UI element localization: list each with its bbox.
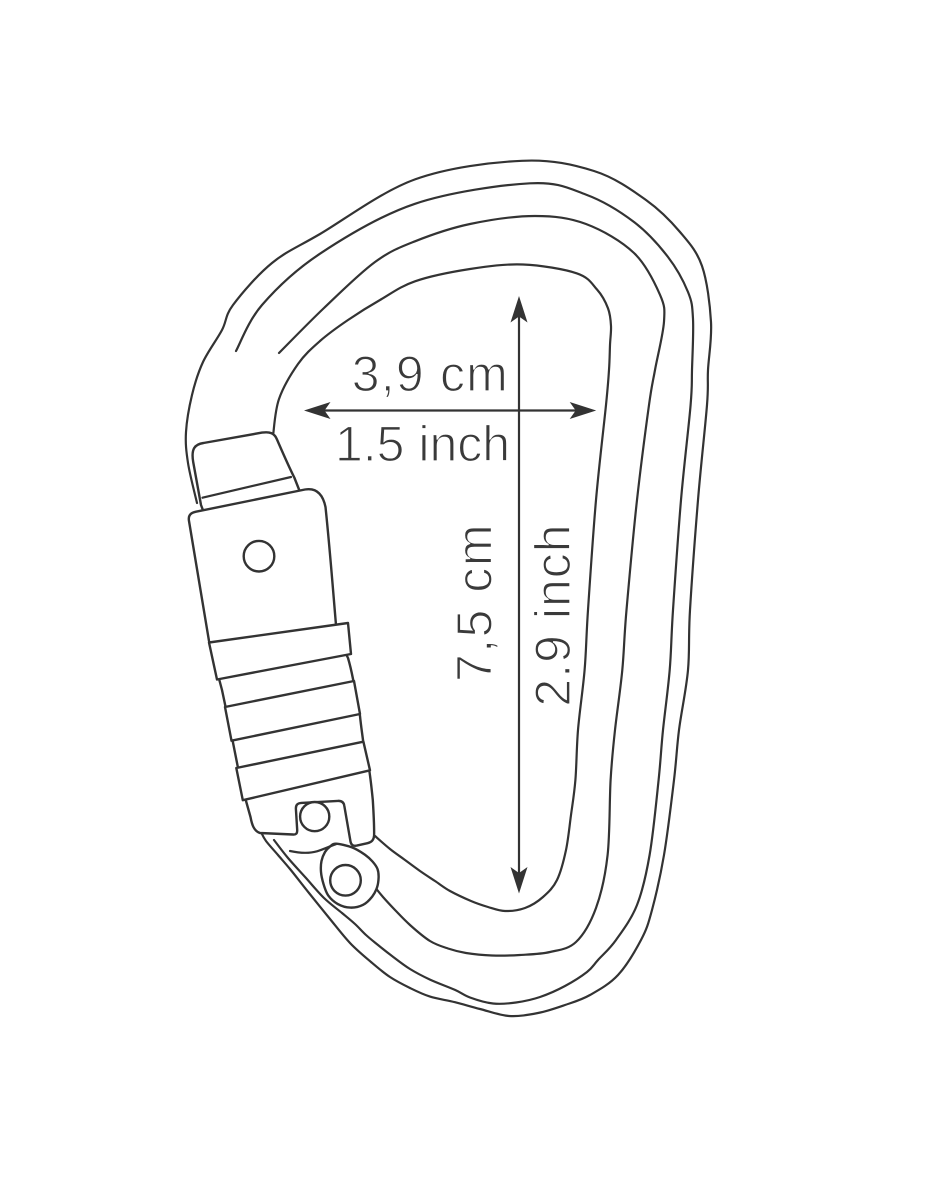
svg-text:3,9 cm: 3,9 cm bbox=[352, 346, 509, 402]
svg-text:1.5 inch: 1.5 inch bbox=[335, 416, 510, 472]
svg-text:2.9 inch: 2.9 inch bbox=[525, 523, 581, 706]
svg-text:7,5 cm: 7,5 cm bbox=[447, 523, 503, 682]
